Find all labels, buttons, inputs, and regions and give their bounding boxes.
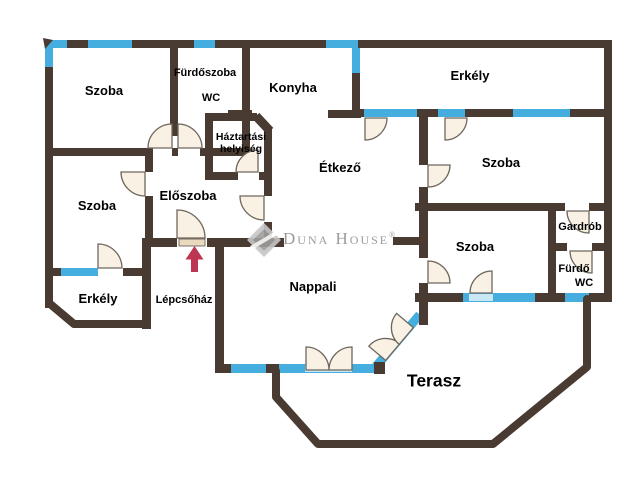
door-eloszoba-etkezo xyxy=(240,196,264,220)
door-etkezo-erkely xyxy=(365,118,387,140)
label-haztartasi: Háztartásihelyiség xyxy=(216,131,266,155)
label-nappali: Nappali xyxy=(290,280,337,294)
door-szoba-right-erkely xyxy=(445,118,467,140)
watermark-brand: Duna House® xyxy=(283,229,395,249)
label-furdo-wc: WC xyxy=(575,277,593,289)
entrance-door-leaf xyxy=(179,239,205,246)
label-szoba-bottom-right: Szoba xyxy=(456,240,494,254)
label-furdo: Fürdő xyxy=(558,263,589,275)
label-konyha: Konyha xyxy=(269,81,317,95)
label-furdoszoba: Fürdőszoba xyxy=(174,67,236,79)
watermark-logo-icon xyxy=(247,223,281,257)
door-szoba-top-left xyxy=(148,124,172,148)
label-lepcsohaz: Lépcsőház xyxy=(156,294,213,306)
label-gardrob: Gardrób xyxy=(558,221,601,233)
floorplan: Szoba Fürdőszoba WC Konyha Erkély Szoba … xyxy=(0,0,640,478)
label-erkely-bottom: Erkély xyxy=(78,292,117,306)
label-szoba-right: Szoba xyxy=(482,156,520,170)
label-etkezo: Étkező xyxy=(319,161,361,175)
door-nappali-szoba xyxy=(428,261,450,283)
label-szoba-left: Szoba xyxy=(78,199,116,213)
label-eloszoba: Előszoba xyxy=(159,189,216,203)
door-furdoszoba xyxy=(178,124,202,148)
label-furdoszoba-wc: WC xyxy=(202,92,220,104)
label-terasz: Terasz xyxy=(407,371,461,390)
label-szoba-top-left: Szoba xyxy=(85,84,123,98)
entrance-arrow-icon xyxy=(186,246,204,272)
french-door-straight xyxy=(306,347,352,370)
label-erkely-top: Erkély xyxy=(450,69,489,83)
door-etkezo-szoba-right xyxy=(428,165,450,187)
door-szoba-left xyxy=(121,172,145,196)
door-erkely-bottom xyxy=(98,244,122,268)
door-szoba-terasz xyxy=(470,271,492,293)
door-entrance xyxy=(177,210,205,238)
